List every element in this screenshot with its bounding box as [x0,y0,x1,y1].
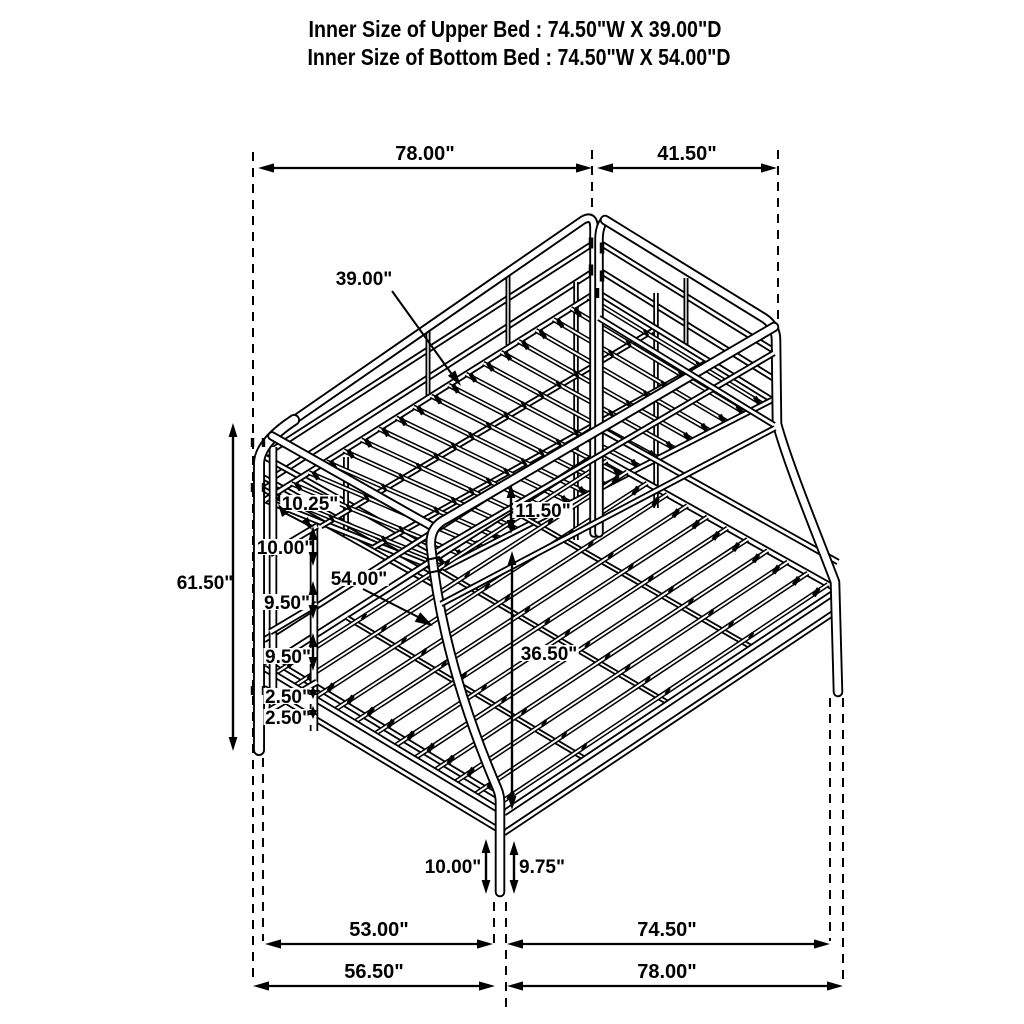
svg-text:9.50": 9.50" [265,647,311,668]
svg-text:11.50": 11.50" [515,501,571,522]
svg-text:61.50": 61.50" [177,573,234,594]
svg-text:56.50": 56.50" [344,961,404,983]
svg-text:Inner Size of Upper Bed : 74.5: Inner Size of Upper Bed : 74.50"W X 39.0… [309,16,722,42]
svg-text:53.00": 53.00" [349,919,409,941]
svg-text:36.50": 36.50" [521,644,578,665]
svg-text:54.00": 54.00" [331,569,388,590]
svg-text:74.50": 74.50" [637,919,697,941]
svg-text:78.00": 78.00" [395,143,455,165]
svg-text:78.00": 78.00" [637,961,697,983]
svg-text:41.50": 41.50" [657,143,717,165]
svg-text:39.00": 39.00" [336,269,393,290]
svg-text:9.50": 9.50" [264,593,310,614]
svg-text:Inner Size of Bottom Bed : 74.: Inner Size of Bottom Bed : 74.50"W X 54.… [308,44,731,70]
svg-text:10.25": 10.25" [282,494,339,515]
svg-text:10.00": 10.00" [257,538,314,559]
svg-text:2.50": 2.50" [265,708,311,729]
svg-text:10.00": 10.00" [425,857,482,878]
svg-text:2.50": 2.50" [265,687,311,708]
svg-text:9.75": 9.75" [519,857,565,878]
